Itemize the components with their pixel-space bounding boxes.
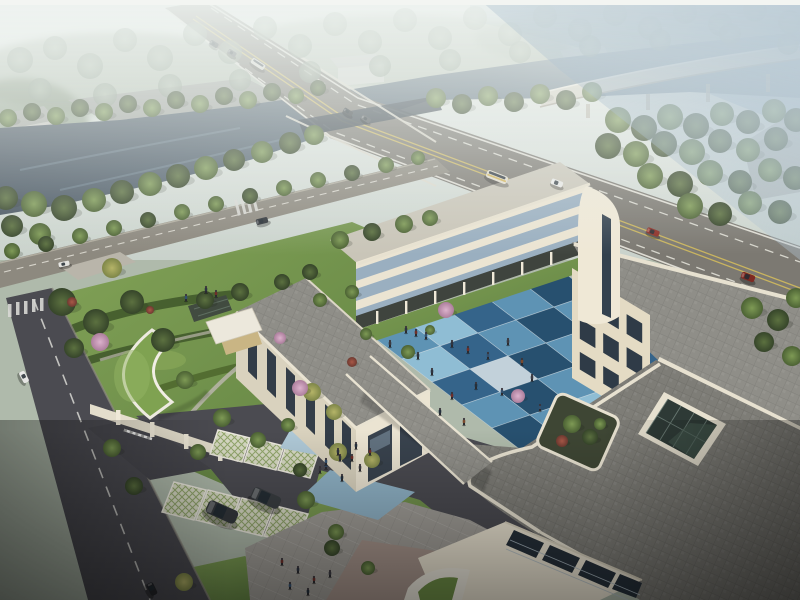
tree — [292, 380, 308, 396]
tree — [313, 293, 327, 307]
tree — [754, 332, 774, 352]
tree — [120, 290, 144, 314]
aerial-architectural-rendering — [0, 0, 800, 600]
tree — [360, 328, 372, 340]
tree — [326, 404, 342, 420]
rendering-canvas — [0, 0, 800, 600]
tree — [302, 264, 318, 280]
vignette-right — [600, 420, 800, 600]
tree — [741, 297, 763, 319]
tree — [511, 389, 525, 403]
tree — [274, 274, 290, 290]
tree — [146, 306, 154, 314]
tree — [151, 328, 175, 352]
tree — [91, 333, 109, 351]
tree — [102, 258, 122, 278]
tree — [176, 371, 194, 389]
tree — [347, 357, 357, 367]
tree — [767, 309, 789, 331]
tree — [438, 302, 454, 318]
top-border — [0, 0, 800, 5]
tree — [231, 283, 249, 301]
tree — [274, 332, 286, 344]
tree — [83, 309, 109, 335]
tree — [281, 418, 295, 432]
tree — [345, 285, 359, 299]
tree — [64, 338, 84, 358]
tree — [401, 345, 415, 359]
tree — [67, 297, 77, 307]
vignette-left — [0, 420, 230, 600]
